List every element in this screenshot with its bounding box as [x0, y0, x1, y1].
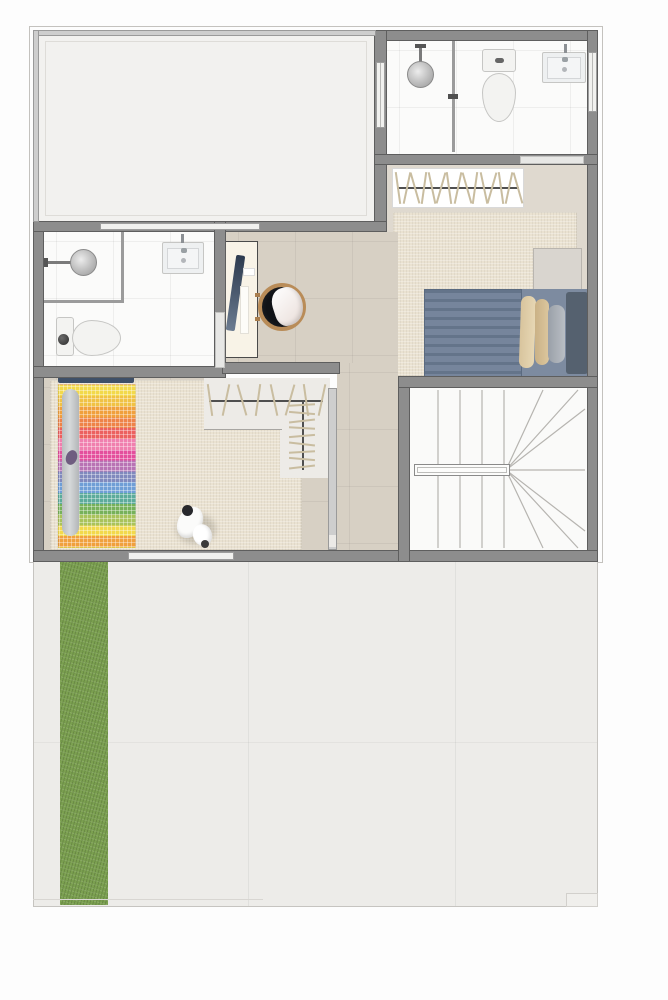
clothes-hanger	[498, 172, 504, 204]
shower-screen-v	[121, 232, 124, 302]
toilet-flush-button	[58, 334, 69, 345]
shower-head	[407, 61, 434, 88]
clothes-hanger	[289, 450, 315, 453]
wall	[222, 362, 340, 374]
parapet-wall	[33, 30, 376, 36]
sink-faucet	[181, 248, 187, 253]
clothes-hanger	[289, 441, 315, 446]
clothes-hanger	[289, 411, 315, 415]
clothes-hanger	[289, 418, 315, 423]
window	[100, 223, 260, 230]
clothes-hanger	[428, 172, 437, 204]
sink	[162, 242, 204, 274]
wall	[33, 550, 598, 562]
bed-pillow-gray	[548, 305, 565, 363]
clothes-hanger	[461, 172, 472, 203]
clothes-hanger	[289, 457, 315, 461]
paper	[243, 268, 255, 276]
terrace-floor	[39, 36, 375, 222]
paving-seam	[455, 562, 456, 906]
clothes-hanger	[435, 172, 446, 203]
sink	[542, 52, 586, 83]
stair-handrail	[414, 464, 510, 476]
terrace-inner-line	[45, 41, 367, 216]
clothes-hanger	[289, 427, 315, 430]
lawn-strip	[60, 561, 108, 905]
wall	[398, 376, 598, 388]
dog-patch	[201, 540, 209, 548]
clothes-hanger	[289, 434, 315, 438]
window	[588, 52, 597, 112]
hall-lower-floor	[337, 363, 398, 550]
clothes-hanger	[472, 172, 478, 204]
patio-step	[566, 893, 598, 907]
clothes-hanger	[270, 384, 279, 416]
toilet-tank	[482, 49, 516, 72]
clothes-hanger	[289, 403, 315, 406]
bed-pillow-beige	[535, 299, 549, 365]
clothes-hanger	[505, 172, 514, 204]
parapet-wall	[33, 30, 39, 222]
shower-screen-h	[44, 300, 124, 303]
wall	[374, 30, 598, 41]
wardrobe-hangers	[397, 171, 519, 205]
sink-drain	[562, 67, 567, 72]
nightstand	[533, 248, 582, 295]
door-opening	[520, 156, 584, 164]
shower-head	[70, 249, 97, 276]
floor-plan	[0, 0, 668, 1000]
window	[376, 62, 385, 128]
window	[128, 552, 234, 560]
wall	[398, 376, 410, 562]
sink-faucet-stem	[181, 234, 184, 243]
shower-divider-handle	[448, 94, 458, 99]
sink-faucet	[562, 57, 568, 62]
partition-notch	[329, 535, 336, 547]
clothes-hanger	[402, 172, 411, 204]
paper	[240, 286, 249, 334]
shower-mount	[415, 44, 426, 48]
wall	[33, 221, 44, 562]
dog-patch	[182, 505, 193, 516]
clothes-hanger	[487, 172, 498, 203]
clothes-hanger	[454, 172, 463, 204]
toilet-flush-button	[495, 58, 504, 63]
bed-pillow-beige	[519, 296, 537, 368]
double-bed	[424, 289, 588, 377]
chair-armrest	[255, 293, 260, 297]
paving-seam	[248, 562, 249, 906]
clothes-hanger	[446, 172, 452, 204]
closet-partition-wall	[328, 388, 337, 550]
shower-mount	[44, 258, 48, 267]
clothes-hanger	[237, 384, 248, 415]
patio-step-line	[33, 899, 263, 900]
wall	[33, 366, 226, 378]
wall	[374, 30, 387, 232]
patio-paving	[33, 561, 598, 907]
bed-headboard	[566, 292, 588, 374]
clothes-hanger	[410, 172, 421, 203]
bed-blanket	[424, 289, 522, 377]
door-opening	[215, 312, 225, 368]
closet-shelf-edge	[204, 429, 282, 430]
closet-rail-v-hangers	[289, 404, 315, 468]
shower-arm	[47, 261, 71, 264]
sink-drain	[181, 258, 186, 263]
sink-faucet-stem	[564, 44, 567, 53]
chair-armrest	[255, 317, 260, 321]
clothes-hanger	[420, 172, 426, 204]
clothes-hanger	[255, 384, 261, 416]
clothes-hanger	[222, 384, 231, 416]
paving-seam	[34, 742, 597, 743]
